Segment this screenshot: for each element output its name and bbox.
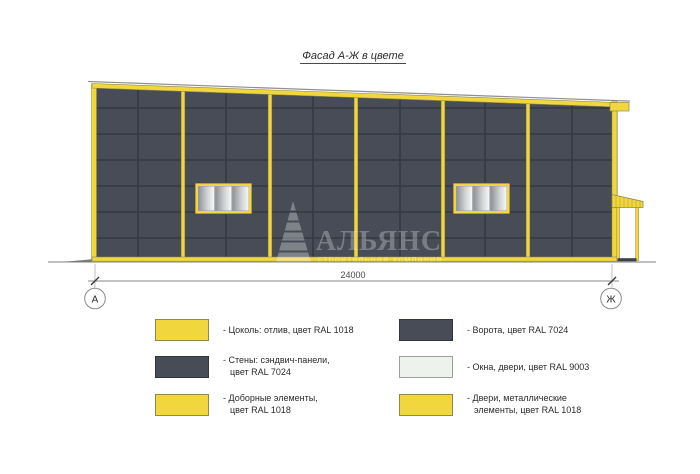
- legend-label-line: элементы, цвет RAL 1018: [474, 404, 647, 416]
- window-pane: [456, 187, 472, 211]
- side-canopy: [612, 195, 643, 262]
- axis-marker-a: А: [85, 288, 106, 309]
- dimension-value: 24000: [340, 270, 365, 280]
- axis-marker-zh: Ж: [601, 288, 622, 309]
- window-pane: [198, 187, 214, 211]
- legend-label-line: - Стены: сэндвич-панели,: [223, 355, 330, 365]
- window-pane: [216, 187, 232, 211]
- legend-item-label: - Окна, двери, цвет RAL 9003: [467, 356, 647, 373]
- legend-label-line: - Ворота, цвет RAL 7024: [467, 325, 568, 335]
- ground-terrain-wedge: [62, 259, 92, 262]
- legend-label-line: цвет RAL 1018: [230, 404, 403, 416]
- canopy-post: [636, 208, 639, 261]
- legend-swatch-yellow: [399, 394, 453, 416]
- drawing-page: Фасад А-Ж в цвете: [0, 0, 700, 474]
- legend-item-label: - Доборные элементы, цвет RAL 1018: [223, 392, 403, 416]
- legend-label-line: - Окна, двери, цвет RAL 9003: [467, 362, 589, 372]
- window-left: [195, 183, 252, 214]
- roof-fascia-overhang: [610, 103, 629, 112]
- axis-marker-a-label: А: [92, 294, 99, 305]
- legend-item-label: - Цоколь: отлив, цвет RAL 1018: [223, 319, 403, 336]
- canopy-post: [617, 208, 620, 261]
- legend-swatch-yellow: [155, 319, 209, 341]
- legend-item-label: - Стены: сэндвич-панели, цвет RAL 7024: [223, 354, 403, 378]
- legend-item-label: - Ворота, цвет RAL 7024: [467, 319, 647, 336]
- axis-marker-zh-label: Ж: [606, 294, 616, 305]
- legend-label-line: цвет RAL 7024: [230, 366, 403, 378]
- legend-swatch-dark: [399, 319, 453, 341]
- window-pane: [491, 187, 507, 211]
- watermark-company-name: АЛЬЯНС: [316, 226, 442, 257]
- dimension: 24000: [88, 264, 619, 288]
- corner-strip-left: [92, 84, 97, 262]
- legend-swatch-dark: [155, 356, 209, 378]
- window-pane: [233, 187, 249, 211]
- legend-swatch-yellow: [155, 394, 209, 416]
- window-right: [453, 183, 510, 214]
- corner-strip-right: [612, 101, 617, 262]
- legend-label-line: - Цоколь: отлив, цвет RAL 1018: [223, 325, 354, 335]
- legend-item-label: - Двери, металлические элементы, цвет RA…: [467, 392, 647, 416]
- canopy-threshold: [618, 258, 637, 261]
- legend-label-line: - Доборные элементы,: [223, 393, 318, 403]
- legend-swatch-white: [399, 356, 453, 378]
- window-pane: [474, 187, 490, 211]
- legend-label-line: - Двери, металлические: [467, 393, 567, 403]
